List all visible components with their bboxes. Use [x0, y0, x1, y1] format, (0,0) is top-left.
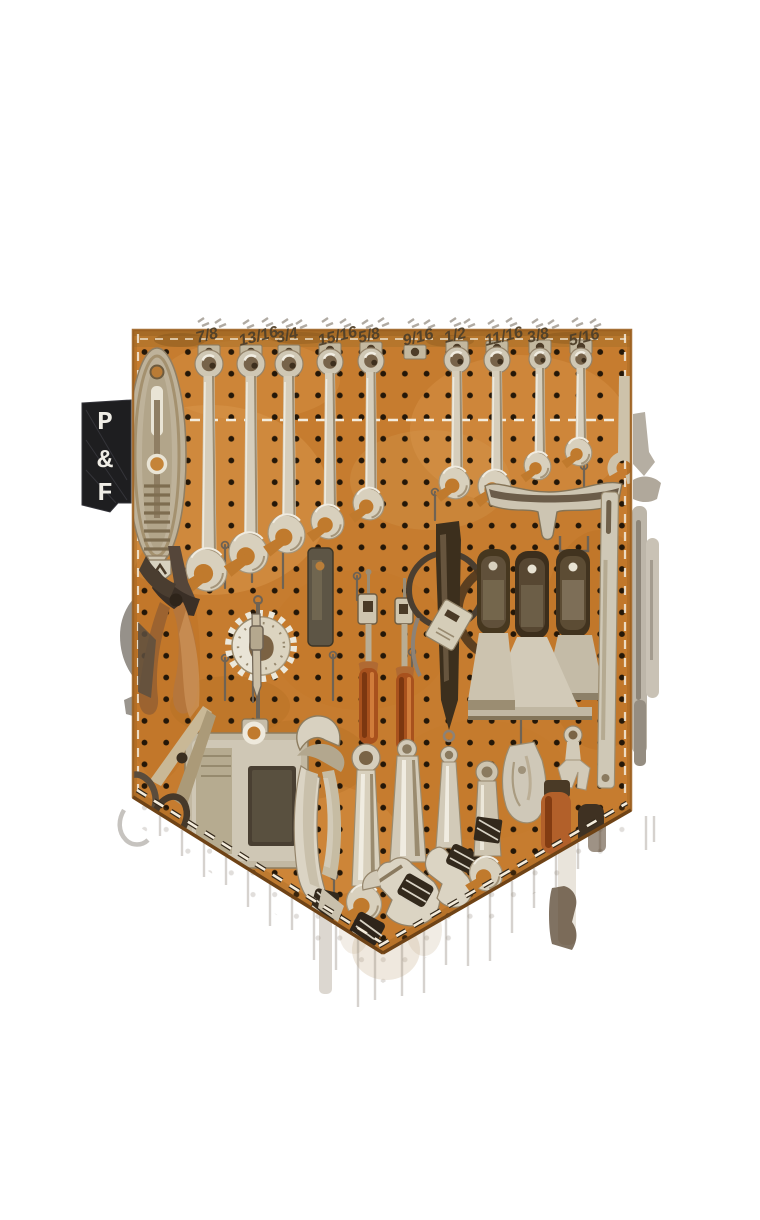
svg-text:P: P — [97, 407, 113, 437]
svg-text:F: F — [97, 478, 113, 508]
svg-text:&: & — [97, 445, 113, 475]
